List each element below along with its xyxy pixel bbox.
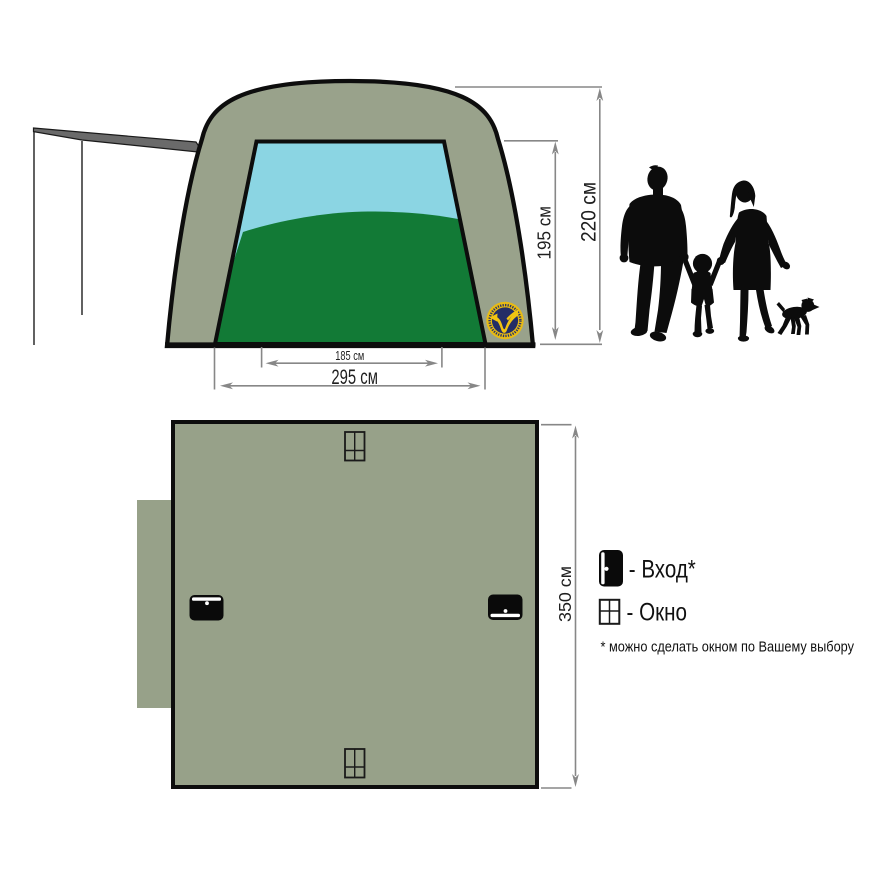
svg-text:220 см: 220 см <box>578 182 601 242</box>
svg-text:* можно сделать окном по Вашем: * можно сделать окном по Вашему выбору <box>601 639 855 656</box>
svg-text:195 см: 195 см <box>535 206 555 260</box>
svg-text:- Окно: - Окно <box>627 599 688 627</box>
svg-text:295 см: 295 см <box>331 366 378 389</box>
svg-text:185 см: 185 см <box>335 349 364 363</box>
svg-text:- Вход*: - Вход* <box>629 556 696 584</box>
svg-text:350 см: 350 см <box>555 566 575 622</box>
